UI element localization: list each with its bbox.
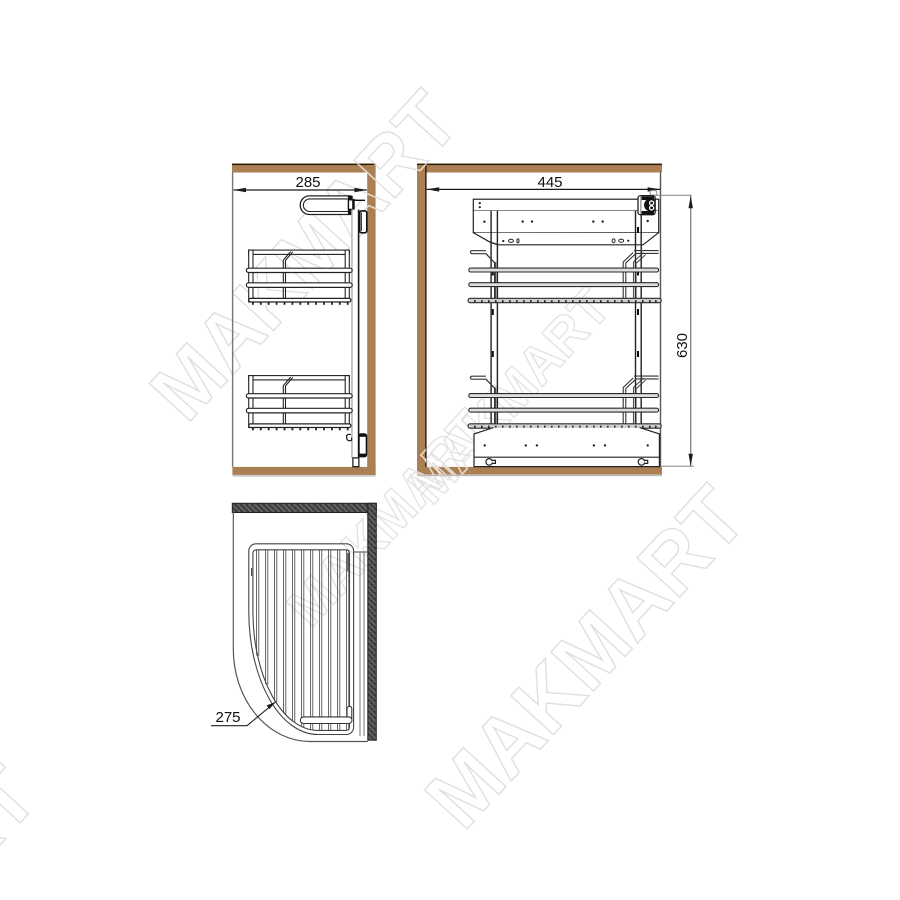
svg-text:275: 275 [215,709,240,726]
svg-text:285: 285 [295,174,320,191]
svg-text:630: 630 [674,333,691,358]
svg-text:445: 445 [537,174,562,191]
